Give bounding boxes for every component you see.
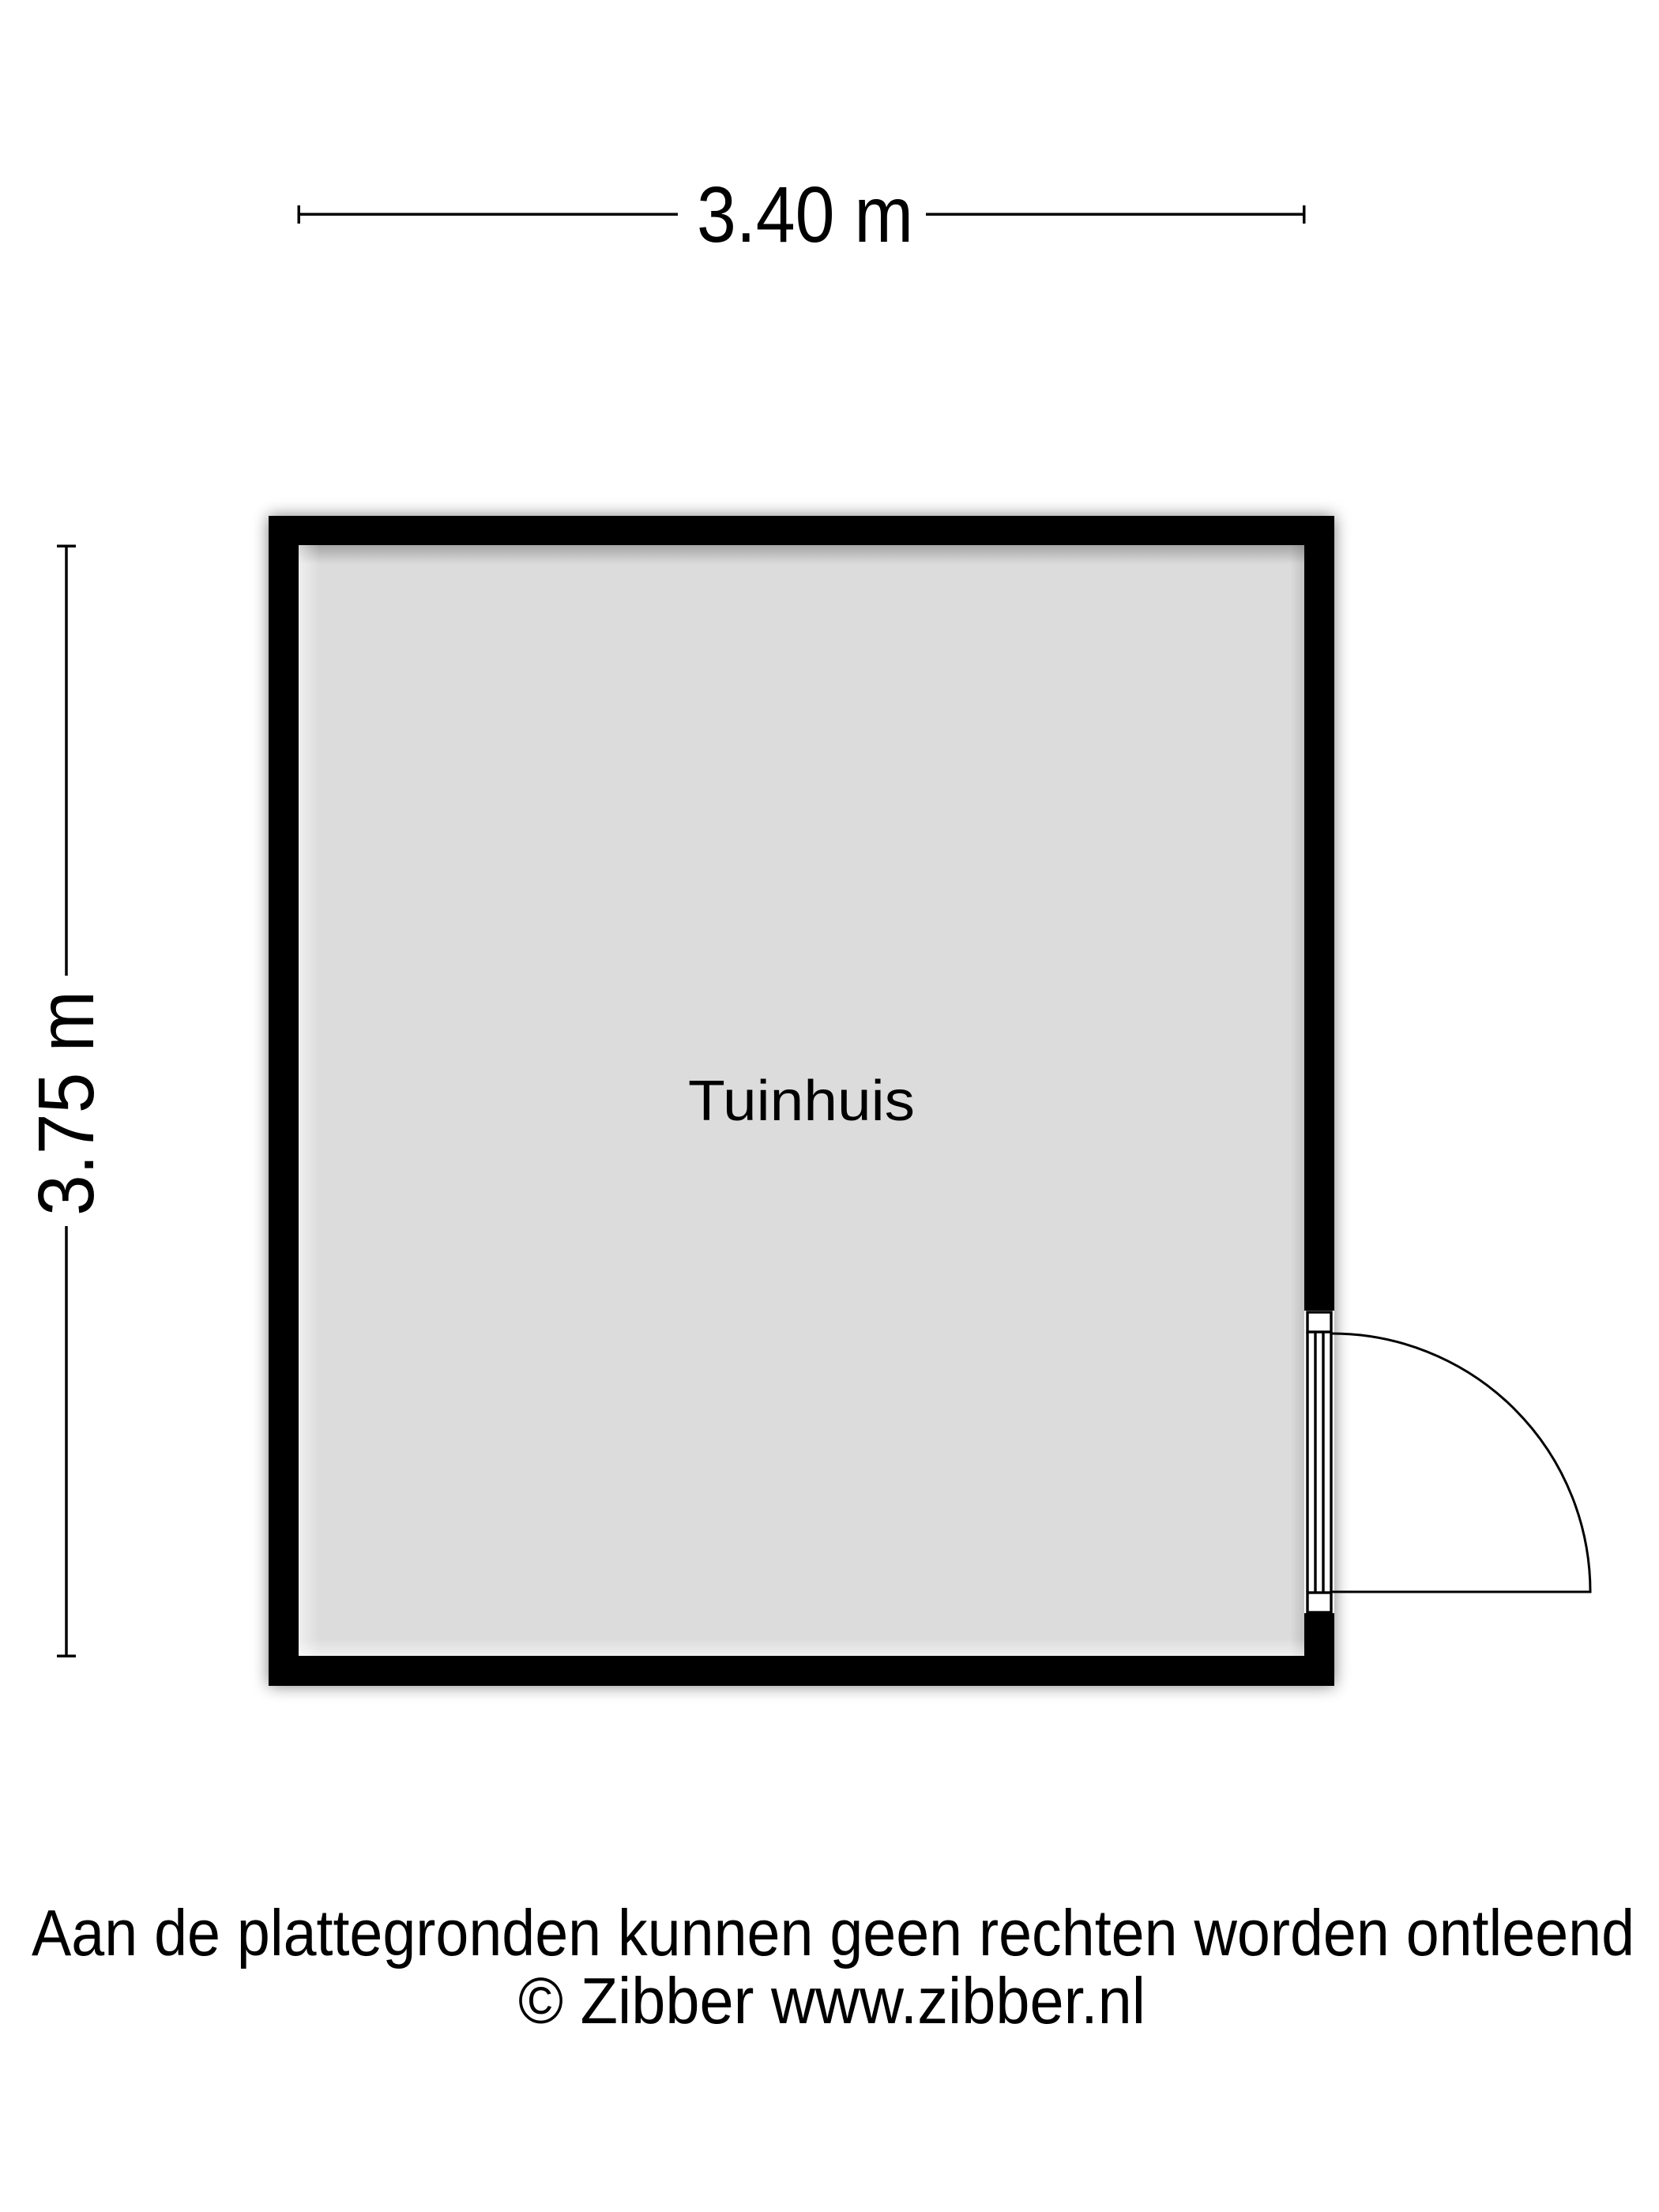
svg-text:© Zibber www.zibber.nl: © Zibber www.zibber.nl [518,1964,1145,2037]
svg-text:Tuinhuis: Tuinhuis [688,1070,915,1133]
svg-text:3.75 m: 3.75 m [22,991,111,1216]
svg-text:Aan de plattegronden kunnen ge: Aan de plattegronden kunnen geen rechten… [32,1896,1635,1969]
svg-text:3.40 m: 3.40 m [697,171,913,259]
